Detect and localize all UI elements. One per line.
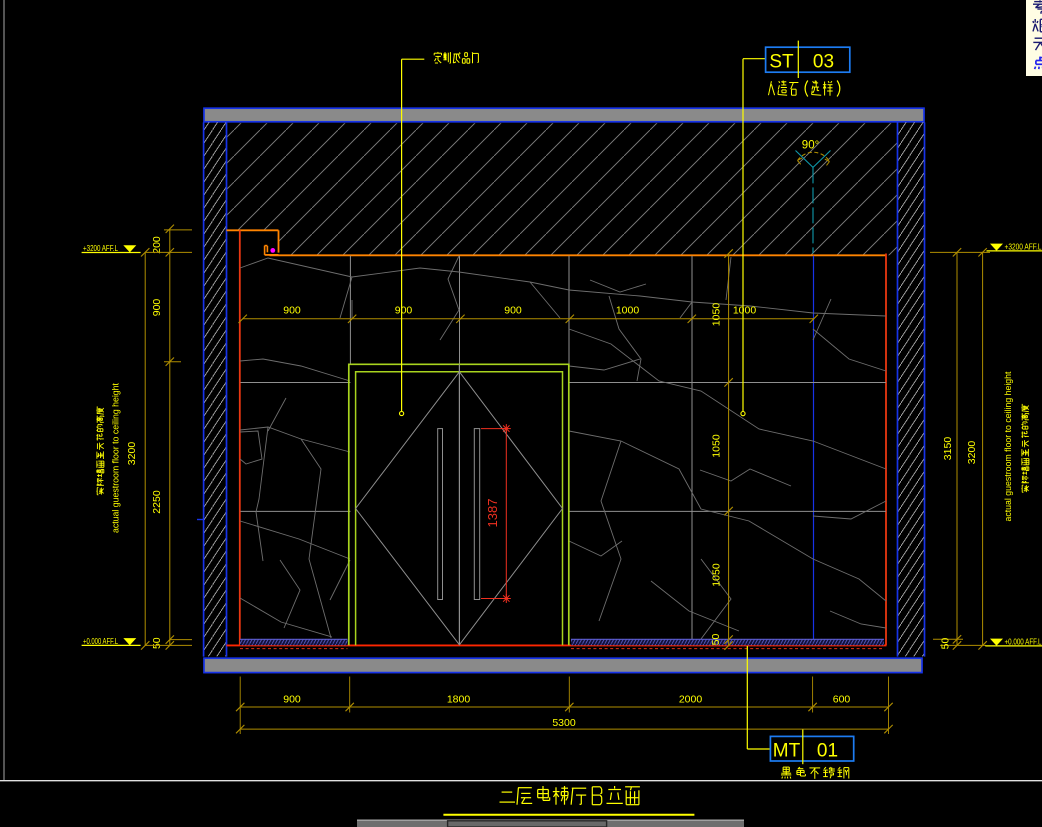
svg-text:900: 900 xyxy=(283,693,301,705)
svg-text:1000: 1000 xyxy=(733,305,757,317)
svg-text:3200: 3200 xyxy=(966,441,978,465)
svg-text:actual guestroom floor to ceil: actual guestroom floor to ceiling height xyxy=(1003,371,1013,522)
svg-text:1050: 1050 xyxy=(711,434,723,458)
svg-text:1800: 1800 xyxy=(447,693,471,705)
svg-text:900: 900 xyxy=(504,305,522,317)
svg-text:3150: 3150 xyxy=(942,437,954,461)
svg-text:3200: 3200 xyxy=(126,442,138,466)
svg-text:2000: 2000 xyxy=(679,693,703,705)
svg-text:1387: 1387 xyxy=(485,499,500,528)
svg-text:01: 01 xyxy=(817,741,838,762)
svg-text:50: 50 xyxy=(940,638,952,650)
svg-text:900: 900 xyxy=(395,305,413,317)
svg-text:50: 50 xyxy=(710,634,722,646)
svg-text:900: 900 xyxy=(283,305,301,317)
svg-text:+0.000 AFF.L: +0.000 AFF.L xyxy=(1005,638,1042,647)
svg-text:MT: MT xyxy=(773,741,801,762)
svg-text:+3200 AFF.L: +3200 AFF.L xyxy=(1005,243,1042,252)
svg-text:5300: 5300 xyxy=(552,717,576,729)
svg-text:+0.000 AFF.L: +0.000 AFF.L xyxy=(83,637,118,646)
svg-text:200: 200 xyxy=(151,236,163,254)
svg-text:900: 900 xyxy=(151,299,163,317)
svg-text:50: 50 xyxy=(151,637,163,649)
svg-text:ST: ST xyxy=(769,52,794,73)
svg-text:+3200 AFF.L: +3200 AFF.L xyxy=(83,244,118,253)
svg-text:1050: 1050 xyxy=(711,563,723,587)
svg-text:600: 600 xyxy=(833,693,851,705)
svg-text:1050: 1050 xyxy=(711,303,723,327)
svg-text:03: 03 xyxy=(813,52,834,73)
svg-text:2250: 2250 xyxy=(151,490,163,514)
svg-text:1000: 1000 xyxy=(616,305,640,317)
svg-text:90°: 90° xyxy=(802,140,819,152)
svg-text:actual guestroom floor to ceil: actual guestroom floor to ceiling height xyxy=(111,382,121,533)
